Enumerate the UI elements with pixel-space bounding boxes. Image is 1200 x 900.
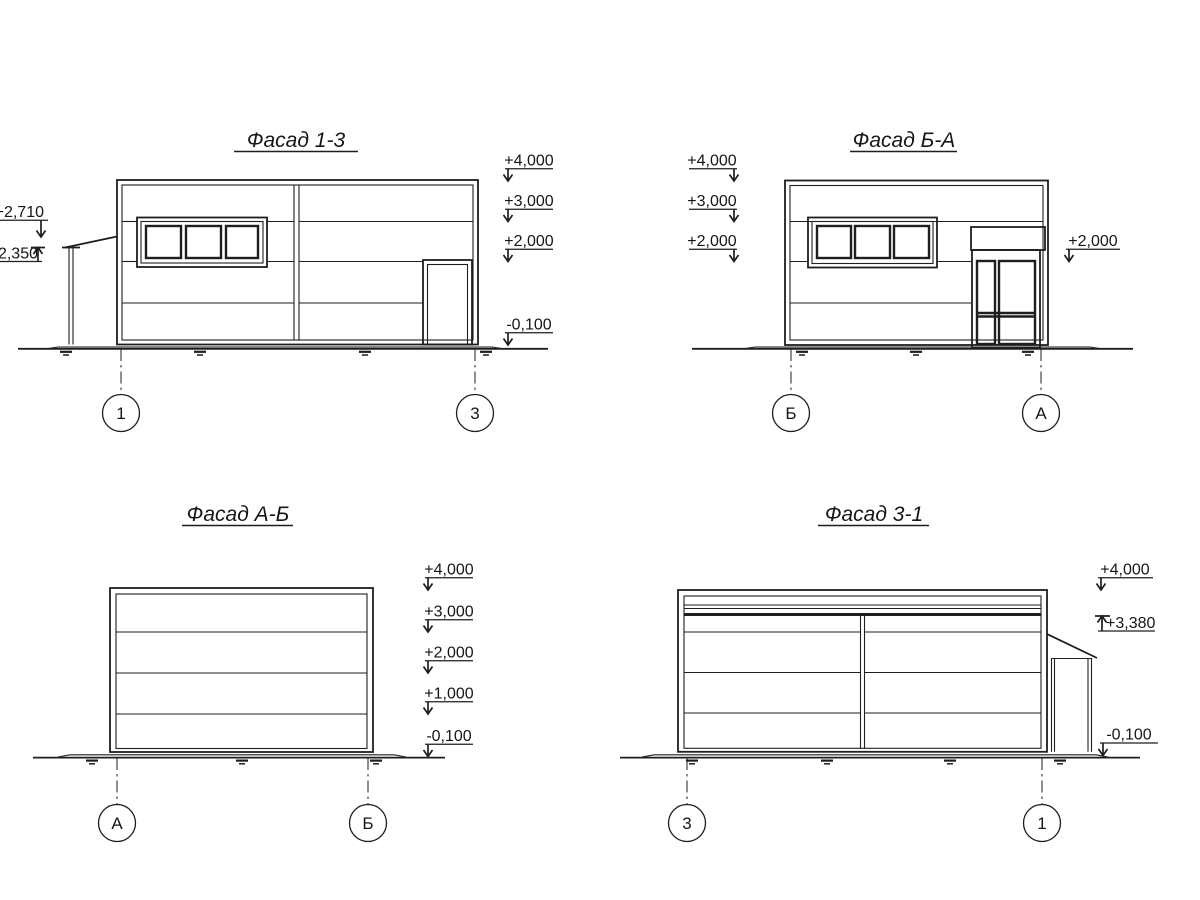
elevation-mark-plus2000: +2,000 (424, 645, 474, 674)
elevation-value: +2,000 (424, 645, 473, 662)
elevation-mark-plus1000: +1,000 (424, 686, 474, 715)
elevation-value: -0,100 (1106, 727, 1151, 744)
elevation-value: +2,000 (687, 233, 736, 250)
panel-seams (684, 632, 1041, 713)
grid-axis-a: А (1023, 349, 1060, 432)
elevation-mark-plus4000: +4,000 (687, 153, 738, 182)
elevation-mark-plus3380: +3,380 (1095, 615, 1155, 632)
elevation-mark-minus0100: -0,100 (504, 317, 554, 346)
annex-porch (62, 237, 117, 345)
elevation-value: +3,000 (424, 604, 473, 621)
grid-axis-3: 3 (669, 758, 706, 842)
grid-axis-1: 1 (1024, 758, 1061, 842)
elevation-mark-plus2000-left: +2,000 (687, 233, 738, 262)
grid-bubble-label: 1 (1037, 814, 1046, 833)
building-outline (785, 181, 1048, 346)
grid-axis-b: Б (773, 349, 810, 432)
grid-axis-b: Б (350, 758, 387, 842)
grid-bubble-label: Б (785, 404, 796, 423)
entrance-door (423, 260, 472, 345)
facade-a-b: Фасад А-Б А Б (33, 503, 474, 842)
parapet-band (684, 605, 1041, 615)
facade-3-1: Фасад 3-1 (620, 503, 1158, 842)
soil-ticks (86, 761, 382, 764)
soil-ticks (60, 352, 492, 355)
grid-bubble-label: Б (362, 814, 373, 833)
grid-bubble-label: 1 (116, 404, 125, 423)
elevation-value: +4,000 (1100, 562, 1149, 579)
building-outline (110, 588, 373, 752)
elevation-mark-plus2710: +2,710 (0, 204, 48, 237)
ribbon-window (137, 218, 267, 268)
elevation-mark-plus4000: +4,000 (424, 562, 474, 591)
facade-a-b-title: Фасад А-Б (187, 503, 290, 526)
facade-1-3: Фасад 1-3 (0, 129, 554, 432)
elevation-mark-plus3000: +3,000 (687, 193, 738, 222)
elevation-value: +4,000 (424, 562, 473, 579)
grid-axis-1: 1 (103, 349, 140, 432)
elevation-value: +2,000 (1068, 233, 1117, 250)
grid-axis-a: А (99, 758, 136, 842)
grid-bubble-label: 3 (470, 404, 479, 423)
glazed-entrance-door (972, 250, 1040, 348)
facade-3-1-title: Фасад 3-1 (825, 503, 923, 526)
elevation-value: +3,380 (1106, 615, 1155, 632)
elevation-mark-2350: 2,350 (0, 246, 45, 263)
facade-1-3-title: Фасад 1-3 (247, 129, 346, 152)
elevation-mark-plus2000-right: +2,000 (1065, 233, 1121, 262)
panel-seams (790, 222, 1043, 304)
drawing-canvas: Фасад 1-3 (0, 0, 1200, 900)
grid-axis-3: 3 (457, 349, 494, 432)
ribbon-window (808, 218, 937, 268)
annex-porch (1047, 634, 1097, 752)
soil-ticks (796, 352, 1034, 355)
grid-bubble-label: 3 (682, 814, 691, 833)
elevation-mark-plus4000: +4,000 (1097, 562, 1154, 591)
elevation-value: +3,000 (687, 193, 736, 210)
elevation-value: +3,000 (504, 193, 553, 210)
elevation-mark-plus4000: +4,000 (504, 153, 554, 182)
elevation-mark-minus0100: -0,100 (424, 728, 474, 757)
plinth (58, 755, 406, 757)
elevation-value: -0,100 (426, 728, 471, 745)
elevation-value: -0,100 (506, 317, 551, 334)
grid-bubble-label: А (1035, 404, 1047, 423)
door-canopy (971, 227, 1045, 250)
elevation-value: +1,000 (424, 686, 473, 703)
elevation-mark-plus2000: +2,000 (504, 233, 554, 262)
panel-seams (116, 632, 367, 714)
elevation-value: +4,000 (504, 153, 553, 170)
soil-ticks (686, 761, 1066, 764)
elevation-drawing-sheet: Фасад 1-3 (0, 0, 1200, 900)
panel-seams (122, 222, 473, 304)
grid-bubble-label: А (111, 814, 123, 833)
elevation-mark-minus0100: -0,100 (1099, 727, 1159, 756)
elevation-value: +2,710 (0, 204, 44, 221)
facade-b-a: Фасад Б-А (687, 129, 1133, 432)
elevation-value: +4,000 (687, 153, 736, 170)
facade-b-a-title: Фасад Б-А (853, 129, 956, 152)
elevation-mark-plus3000: +3,000 (424, 604, 474, 633)
elevation-value: +2,000 (504, 233, 553, 250)
elevation-mark-plus3000: +3,000 (504, 193, 554, 222)
